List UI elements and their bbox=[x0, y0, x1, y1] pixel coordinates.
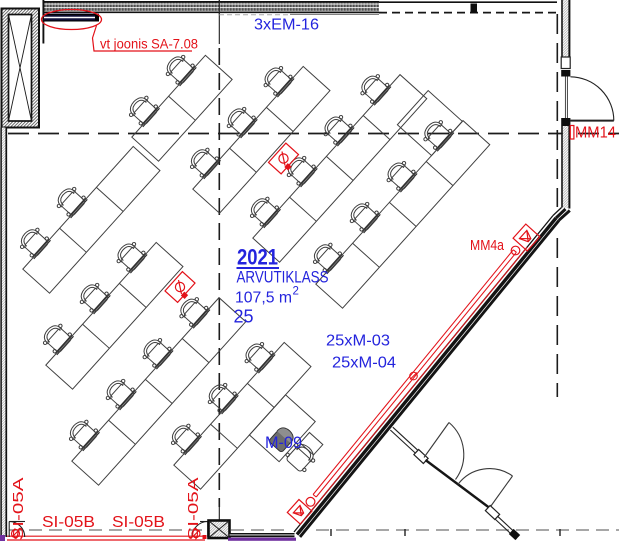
svg-text:vt joonis SA-7.08: vt joonis SA-7.08 bbox=[100, 37, 198, 52]
svg-text:2021: 2021 bbox=[237, 245, 278, 270]
svg-text:M-09: M-09 bbox=[265, 434, 302, 452]
svg-text:25xM-03: 25xM-03 bbox=[326, 333, 390, 350]
svg-text:MM14: MM14 bbox=[575, 125, 616, 142]
svg-text:SI-05A: SI-05A bbox=[10, 478, 27, 541]
svg-text:MM4a: MM4a bbox=[470, 237, 505, 254]
svg-text:ARVUTIKLASS: ARVUTIKLASS bbox=[237, 269, 329, 287]
svg-text:2: 2 bbox=[293, 286, 299, 298]
svg-text:25xM-04: 25xM-04 bbox=[332, 355, 396, 372]
svg-text:SI-05A: SI-05A bbox=[185, 478, 202, 541]
svg-text:3xEM-16: 3xEM-16 bbox=[254, 17, 319, 34]
svg-text:25: 25 bbox=[234, 307, 254, 327]
svg-text:SI-05B: SI-05B bbox=[112, 514, 165, 531]
svg-text:SI-05B: SI-05B bbox=[42, 514, 95, 531]
svg-text:107,5 m: 107,5 m bbox=[235, 290, 292, 307]
